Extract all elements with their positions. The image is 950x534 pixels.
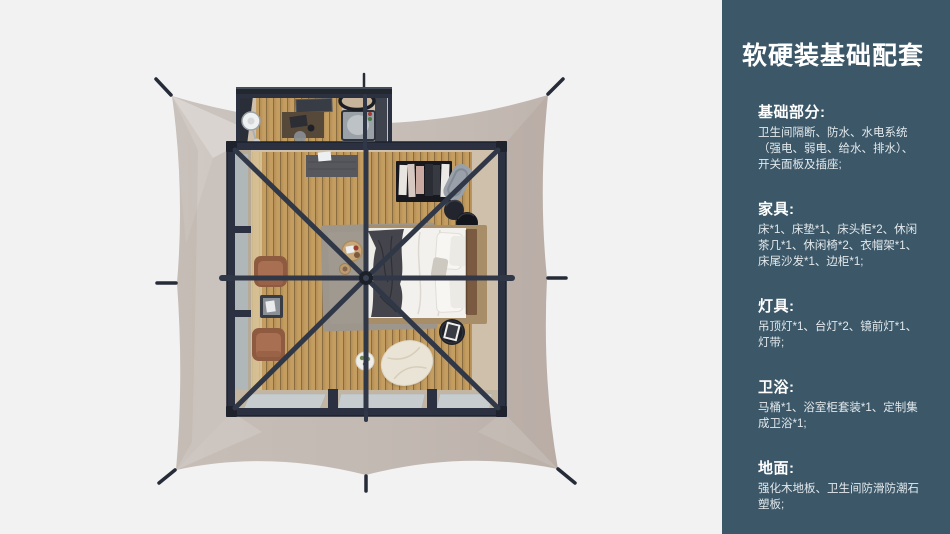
tea-table (260, 295, 283, 318)
info-sidebar: 软硬装基础配套 基础部分: 卫生间隔断、防水、水电系统 （强电、弱电、给水、排水… (722, 0, 950, 534)
stake-top-left (156, 79, 171, 95)
spec-body: 吊顶灯*1、台灯*2、镜前灯*1、 灯带; (758, 319, 934, 351)
leisure-chair-1 (254, 256, 287, 287)
clothes-rack (396, 161, 452, 202)
vanity-chair (294, 131, 306, 143)
bathroom-cabinet (375, 98, 387, 142)
doorway-mat (306, 151, 358, 177)
spec-section-furniture: 家具: 床*1、床垫*1、床头柜*2、休闲 茶几*1、休闲椅*2、衣帽架*1、 … (758, 198, 934, 270)
stake-bottom-right (558, 469, 575, 483)
tent-floorplan-render (0, 0, 722, 534)
leisure-chair-2 (252, 328, 285, 361)
shower-unit (340, 93, 375, 141)
spec-heading: 灯具: (758, 295, 934, 316)
bathroom-pod (236, 87, 392, 146)
spec-body: 床*1、床垫*1、床头柜*2、休闲 茶几*1、休闲椅*2、衣帽架*1、 床尾沙发… (758, 222, 934, 270)
spec-body: 强化木地板、卫生间防滑防潮石 塑板; (758, 481, 934, 513)
spec-section-bathroom: 卫浴: 马桶*1、浴室柜套装*1、定制集 成卫浴*1; (758, 376, 934, 432)
spec-section-basics: 基础部分: 卫生间隔断、防水、水电系统 （强电、弱电、给水、排水）、 开关面板及… (758, 101, 934, 173)
hub (359, 271, 373, 285)
nightstand-table (439, 319, 465, 345)
spec-body: 马桶*1、浴室柜套装*1、定制集 成卫浴*1; (758, 400, 934, 432)
spec-heading: 卫浴: (758, 376, 934, 397)
canvas-shade-right (503, 95, 558, 469)
sidebar-title: 软硬装基础配套 (742, 42, 934, 71)
stake-top-right (548, 79, 563, 94)
spec-section-flooring: 地面: 强化木地板、卫生间防滑防潮石 塑板; (758, 457, 934, 513)
spec-body: 卫生间隔断、防水、水电系统 （强电、弱电、给水、排水）、 开关面板及插座; (758, 125, 934, 173)
headboard (466, 229, 477, 315)
stake-bottom-left (159, 470, 175, 483)
bed (363, 225, 487, 324)
spec-heading: 基础部分: (758, 101, 934, 122)
slide: 软硬装基础配套 基础部分: 卫生间隔断、防水、水电系统 （强电、弱电、给水、排水… (0, 0, 950, 534)
spec-heading: 家具: (758, 198, 934, 219)
spec-section-lighting: 灯具: 吊顶灯*1、台灯*2、镜前灯*1、 灯带; (758, 295, 934, 351)
spec-heading: 地面: (758, 457, 934, 478)
